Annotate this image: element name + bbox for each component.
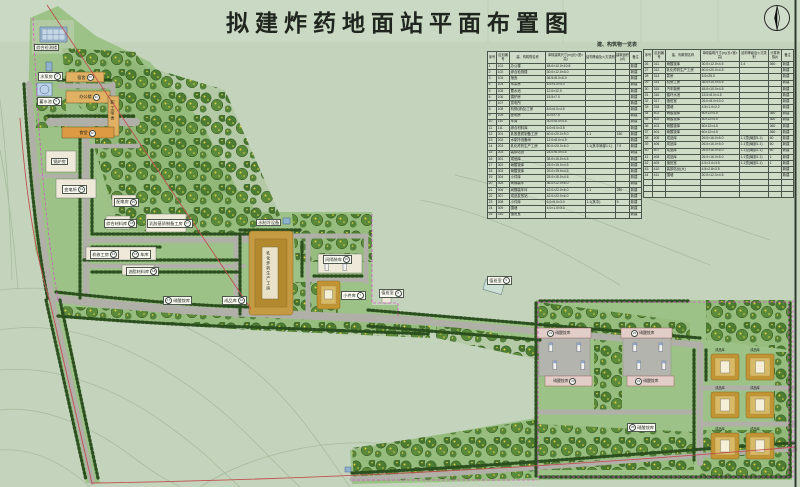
north-arrow-compass bbox=[762, 2, 792, 34]
table-cell: 310 bbox=[497, 212, 510, 218]
label-an-warehouse-5: 25硝酸铵库 bbox=[627, 423, 656, 432]
table-cell bbox=[769, 191, 782, 197]
site-plan-drawing: 拟建炸药地面站平面布置图 建、构筑物一览表 序号区划编号建、构筑物名称单幢建筑尺… bbox=[0, 0, 800, 487]
loading-yard-1 bbox=[539, 338, 590, 376]
loading-yard-2 bbox=[623, 338, 671, 376]
label-oil-store: 油脂材料库18 bbox=[126, 267, 159, 276]
label-product-bunker-1: 成品库 bbox=[714, 348, 726, 352]
label-small-items-store: 小件库7 bbox=[341, 291, 366, 300]
product-bunker bbox=[711, 354, 739, 380]
product-bunker bbox=[746, 354, 774, 380]
structures-table-right: 序号区划编号建、构筑物名称单幢建筑尺寸(m)(长×宽×高)结构等级及火灾类别计算… bbox=[643, 49, 794, 198]
table-cell: 值班室 bbox=[510, 212, 546, 218]
structures-table-left: 序号区划编号建、构筑物名称单幢建筑尺寸(m)(长×宽×高)结构等级及火灾类别建筑… bbox=[487, 51, 642, 219]
table-header-cell: 单幢建筑尺寸(m)(长×宽×高) bbox=[546, 52, 586, 64]
label-staff-dormitory: 职工宿舍 bbox=[109, 100, 117, 121]
table-header-cell: 区划编号 bbox=[497, 52, 510, 64]
table-header-cell: 计算荷载(t) bbox=[769, 50, 782, 62]
table-cell: 新建 bbox=[630, 212, 642, 218]
label-product-store-road: 成品库19 bbox=[222, 296, 247, 305]
table-cell: 25 bbox=[488, 212, 497, 218]
label-product-bunker-6: 成品库 bbox=[749, 427, 761, 431]
table-cell bbox=[546, 212, 586, 218]
table-header-cell: 结构等级及火灾类别 bbox=[586, 52, 616, 64]
product-bunker bbox=[711, 433, 739, 459]
table-row bbox=[644, 191, 794, 197]
label-lab-building: 综合检测楼 bbox=[34, 44, 59, 51]
gate-kiosk bbox=[345, 467, 351, 472]
table-cell bbox=[586, 212, 616, 218]
reservoir bbox=[37, 83, 52, 96]
label-substation: 变电所14 bbox=[62, 185, 87, 194]
pump-house bbox=[46, 62, 52, 71]
label-an-warehouse-2: 22硝酸铵库 bbox=[630, 330, 656, 337]
table-header-cell: 结构等级及火灾类别 bbox=[740, 50, 769, 62]
page-title: 拟建炸药地面站平面布置图 bbox=[226, 4, 574, 38]
table-row: 25310值班室新建 bbox=[488, 212, 642, 218]
table-header-cell: 单幢建筑尺寸(m)(长×宽×高) bbox=[701, 50, 740, 62]
label-duty-room-2: 值班室9 bbox=[487, 276, 512, 285]
table-header-cell: 区划编号 bbox=[653, 50, 666, 62]
table-cell bbox=[701, 191, 740, 197]
label-material-warehouse: 综合材料库16 bbox=[104, 219, 137, 228]
label-product-bunker-2: 成品库 bbox=[749, 348, 761, 352]
label-canteen: 食堂12 bbox=[78, 130, 97, 137]
table-cell bbox=[653, 191, 666, 197]
label-latex-plant: 乳胶基质制备工房17 bbox=[147, 219, 193, 228]
table-header-cell: 备注 bbox=[782, 50, 794, 62]
table-header-cell: 建筑面积(㎡) bbox=[616, 52, 630, 64]
table-cell bbox=[740, 191, 769, 197]
label-chiller: 水制冷设备 bbox=[256, 219, 281, 226]
product-bunker bbox=[711, 392, 739, 418]
label-boiler-house: 锅炉房 bbox=[51, 158, 68, 165]
label-office: 办公楼11 bbox=[78, 94, 101, 101]
product-bunker bbox=[746, 433, 774, 459]
label-an-warehouse-4: 24硝酸铵库 bbox=[634, 378, 660, 385]
chiller-unit bbox=[283, 218, 290, 224]
table-header-cell: 建、构筑物名称 bbox=[666, 50, 701, 62]
label-mech-shop: 机修工房13 bbox=[90, 250, 119, 259]
product-bunker bbox=[746, 392, 774, 418]
label-an-warehouse-3: 硝酸铵库23 bbox=[552, 378, 578, 385]
small-items-bunker bbox=[317, 281, 340, 309]
label-garage: 16车库 bbox=[130, 250, 151, 259]
table-header-cell: 序号 bbox=[644, 50, 653, 62]
label-production-building: 乳化炸药生产工房 bbox=[265, 251, 272, 291]
label-product-bunker-3: 成品库 bbox=[714, 386, 726, 390]
label-an-warehouse-1: 21硝酸铵库 bbox=[546, 330, 572, 337]
table-cell bbox=[782, 191, 794, 197]
label-interval-loading: 间隔装车20 bbox=[323, 255, 352, 264]
table-cell bbox=[616, 212, 630, 218]
label-pump-house: 水泵房4 bbox=[38, 72, 63, 81]
table-cell bbox=[666, 191, 701, 197]
table-header-cell: 序号 bbox=[488, 52, 497, 64]
table-header-cell: 备注 bbox=[630, 52, 642, 64]
label-dormitory: 宿舍10 bbox=[76, 74, 95, 81]
label-an-warehouse-road: 17硝酸铵库 bbox=[163, 296, 192, 305]
label-duty-room-1: 值班室8 bbox=[379, 289, 404, 298]
label-reservoir: 蓄水池5 bbox=[37, 97, 62, 106]
label-product-bunker-4: 成品库 bbox=[749, 386, 761, 390]
table-cell bbox=[644, 191, 653, 197]
label-product-bunker-5: 成品库 bbox=[714, 427, 726, 431]
table-caption: 建、构筑物一览表 bbox=[597, 41, 637, 48]
table-header-cell: 建、构筑物名称 bbox=[510, 52, 546, 64]
label-power-room: 配电房15 bbox=[114, 198, 139, 207]
